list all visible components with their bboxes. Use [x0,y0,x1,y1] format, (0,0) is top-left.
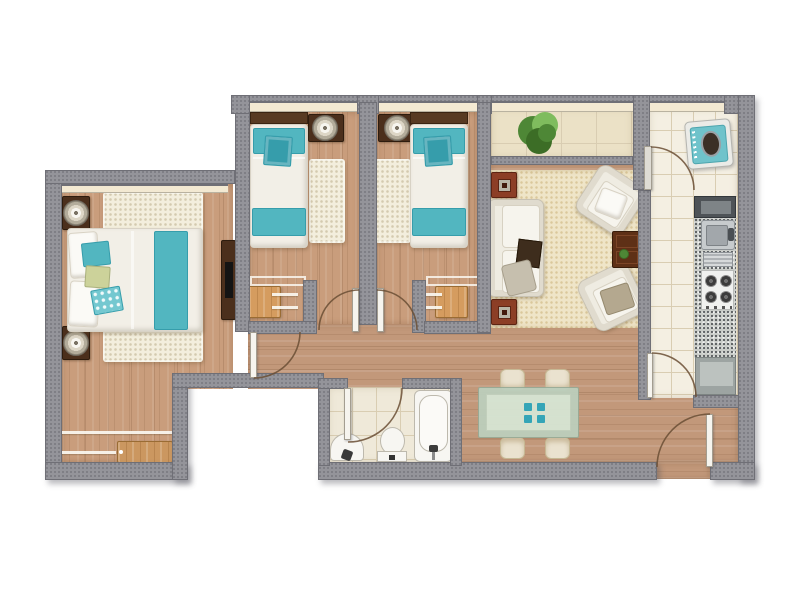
bedroom3-door-arc [377,290,417,330]
kitchen-north-door-arc [651,147,694,190]
bathroom-door-arc [348,388,402,442]
floor-plan [0,0,800,600]
entrance-door-arc [657,414,710,467]
kitchen-south-door-arc [652,353,696,397]
door-swing-arcs [0,0,800,600]
bedroom2-door-arc [319,290,359,330]
master-door-arc [254,332,300,378]
